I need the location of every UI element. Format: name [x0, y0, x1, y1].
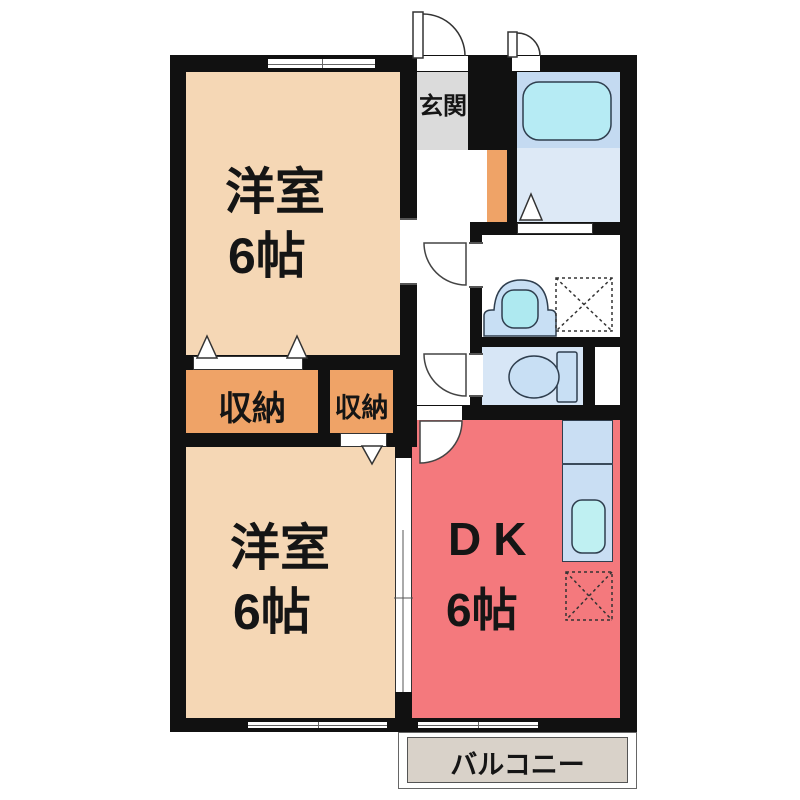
dk-size: 6帖	[446, 574, 518, 640]
refrigerator-space-icon	[566, 572, 612, 620]
room-bottom-size: 6帖	[233, 572, 311, 644]
bathtub-icon	[523, 82, 611, 140]
door-swing-icon	[424, 354, 466, 396]
kitchen-sink-icon	[572, 500, 605, 553]
closet-small-label: 収納	[330, 386, 393, 425]
door-swing-icon	[413, 12, 465, 58]
floorplan-canvas: 洋室 6帖 玄関 収納 収納 洋室 6帖 DK 6帖 バルコニー	[0, 0, 800, 800]
closet-folding-door-icon	[362, 446, 382, 464]
closet-folding-door-icon	[287, 336, 307, 358]
door-swing-icon	[424, 243, 466, 285]
room-bottom-name: 洋室	[230, 508, 330, 580]
bath-folding-door-icon	[520, 194, 542, 220]
closet-large-label: 収納	[186, 381, 318, 430]
room-top-name: 洋室	[225, 152, 325, 224]
fixtures-overlay	[0, 0, 800, 800]
entrance-label: 玄関	[413, 86, 473, 121]
closet-folding-door-icon	[197, 336, 217, 358]
sliding-door-icon	[394, 530, 413, 692]
dk-name: DK	[448, 512, 538, 566]
door-swing-icon	[508, 32, 540, 57]
washbasin-icon	[484, 280, 556, 336]
room-top-size: 6帖	[228, 216, 306, 288]
door-swing-icon	[420, 421, 462, 463]
washing-machine-space-icon	[556, 278, 612, 331]
toilet-icon	[509, 352, 577, 402]
balcony-label: バルコニー	[407, 743, 628, 782]
